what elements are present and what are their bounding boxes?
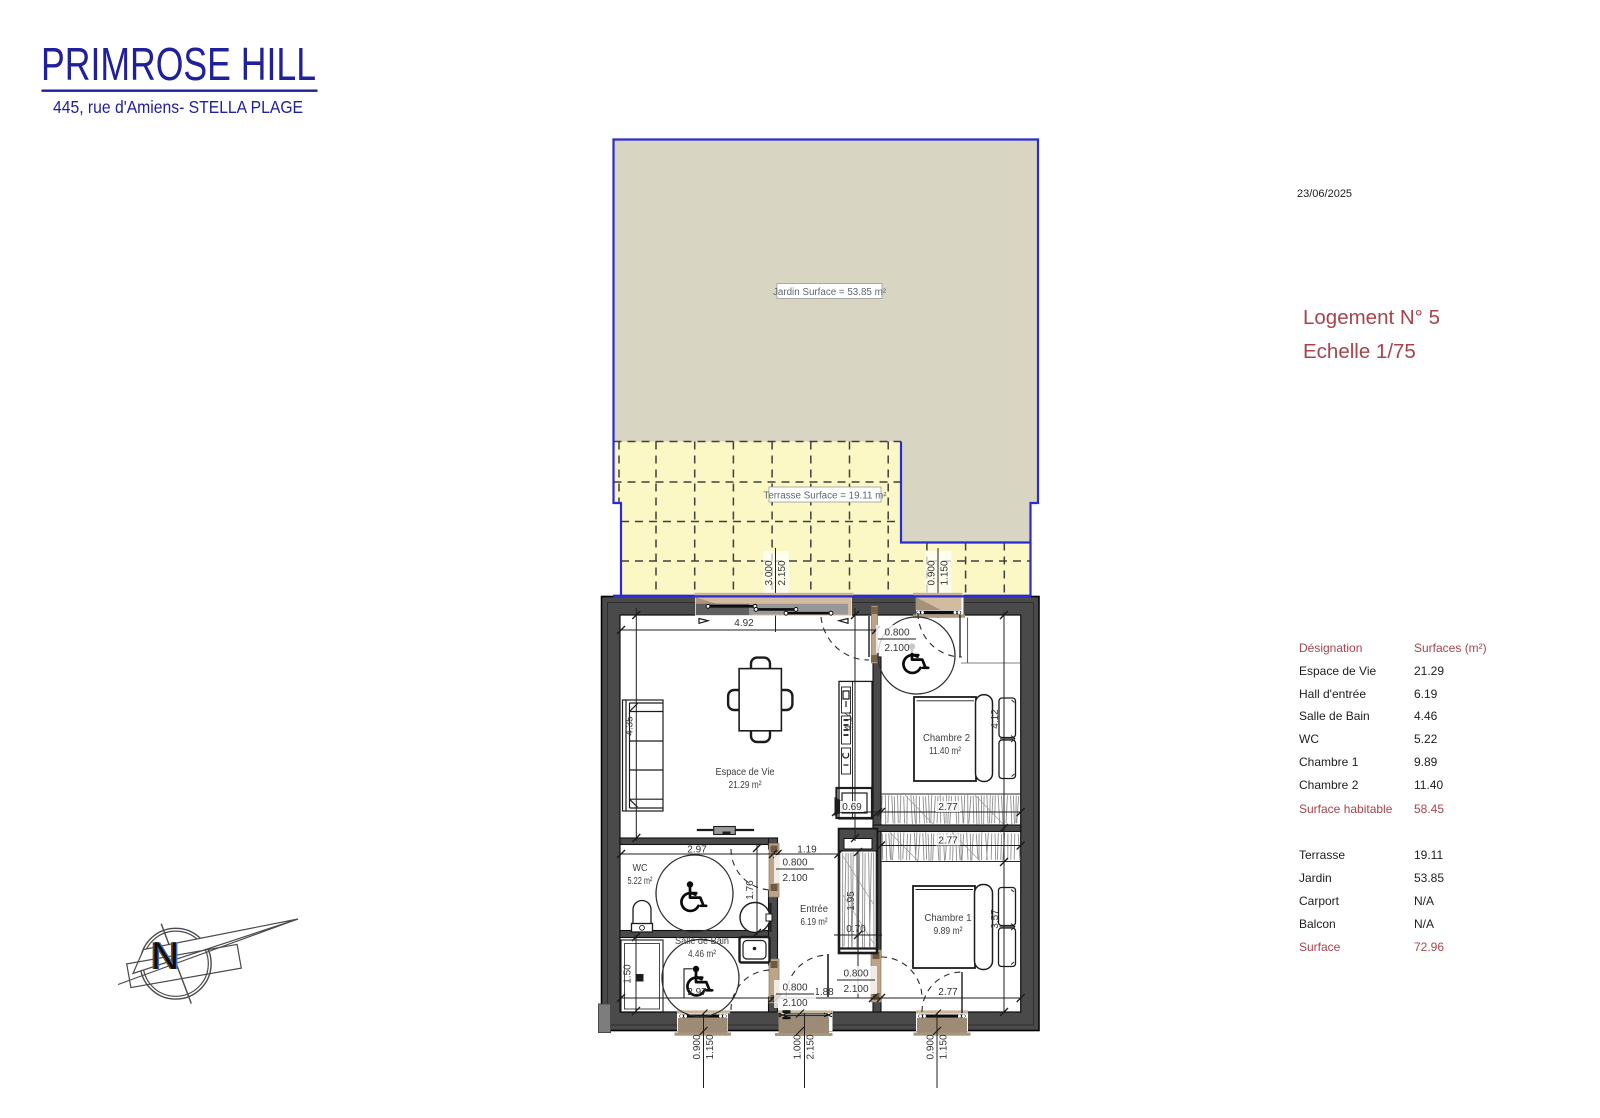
svg-text:2.100: 2.100 [782, 873, 807, 884]
svg-text:11.40 m²: 11.40 m² [929, 746, 962, 757]
svg-text:2.77: 2.77 [938, 836, 958, 847]
svg-text:2.150: 2.150 [777, 560, 788, 585]
svg-text:2.150: 2.150 [806, 1034, 817, 1059]
svg-text:PRIMROSE HILL: PRIMROSE HILL [41, 38, 316, 90]
svg-text:Terrasse Surface = 19.11 m²: Terrasse Surface = 19.11 m² [763, 490, 887, 501]
svg-text:1.150: 1.150 [705, 1034, 716, 1059]
svg-text:9.89 m²: 9.89 m² [934, 926, 964, 937]
svg-text:53.85: 53.85 [1414, 871, 1444, 885]
svg-text:N: N [151, 935, 179, 978]
svg-text:1.76: 1.76 [745, 880, 756, 900]
svg-text:1.19: 1.19 [797, 845, 817, 856]
svg-text:4.12: 4.12 [990, 709, 1001, 729]
svg-text:0.900: 0.900 [692, 1034, 703, 1059]
svg-text:21.29 m²: 21.29 m² [729, 780, 763, 791]
svg-text:1.88: 1.88 [814, 987, 834, 998]
svg-text:Terrasse: Terrasse [1299, 848, 1345, 862]
svg-text:72.96: 72.96 [1414, 940, 1444, 954]
svg-text:21.29: 21.29 [1414, 664, 1444, 678]
svg-text:Espace de Vie: Espace de Vie [716, 766, 775, 778]
svg-text:Chambre 2: Chambre 2 [923, 732, 970, 744]
svg-text:WC: WC [1299, 732, 1319, 746]
svg-text:Désignation: Désignation [1299, 641, 1362, 655]
svg-text:Salle de Bain: Salle de Bain [675, 935, 729, 947]
svg-text:Jardin: Jardin [1299, 871, 1332, 885]
svg-text:Echelle 1/75: Echelle 1/75 [1303, 340, 1416, 363]
svg-text:3.000: 3.000 [764, 560, 775, 585]
svg-text:WC: WC [633, 862, 648, 874]
svg-text:2.97: 2.97 [687, 845, 707, 856]
svg-text:2.97: 2.97 [687, 987, 707, 998]
svg-text:1.000: 1.000 [793, 1034, 804, 1059]
svg-text:Salle de Bain: Salle de Bain [1299, 709, 1370, 723]
svg-text:23/06/2025: 23/06/2025 [1297, 188, 1352, 200]
svg-text:1.150: 1.150 [939, 1034, 950, 1059]
svg-text:2.100: 2.100 [782, 998, 807, 1009]
svg-text:Carport: Carport [1299, 894, 1340, 908]
svg-text:Jardin Surface = 53.85 m²: Jardin Surface = 53.85 m² [773, 287, 887, 298]
svg-text:2.100: 2.100 [843, 984, 868, 995]
svg-text:4.46: 4.46 [1414, 709, 1438, 723]
svg-text:2.77: 2.77 [938, 987, 958, 998]
svg-text:5.22 m²: 5.22 m² [628, 876, 653, 887]
svg-text:0.800: 0.800 [884, 628, 909, 639]
svg-text:Chambre 1: Chambre 1 [1299, 755, 1359, 769]
svg-text:11.40: 11.40 [1414, 778, 1443, 792]
svg-text:0.800: 0.800 [782, 858, 807, 869]
svg-text:Surface habitable: Surface habitable [1299, 802, 1393, 816]
svg-text:Entrée: Entrée [800, 903, 828, 915]
svg-text:Chambre 2: Chambre 2 [1299, 778, 1359, 792]
svg-text:N/A: N/A [1414, 894, 1434, 908]
svg-text:6.19: 6.19 [1414, 687, 1438, 701]
svg-text:Surface: Surface [1299, 940, 1341, 954]
svg-text:Espace de Vie: Espace de Vie [1299, 664, 1376, 678]
svg-text:Hall d'entrée: Hall d'entrée [1299, 687, 1366, 701]
svg-text:4.35: 4.35 [625, 716, 636, 736]
svg-text:Chambre 1: Chambre 1 [925, 912, 972, 924]
svg-text:Balcon: Balcon [1299, 917, 1336, 931]
svg-text:0.69: 0.69 [842, 802, 862, 813]
svg-text:0.900: 0.900 [926, 1034, 937, 1059]
svg-text:1.150: 1.150 [940, 560, 951, 585]
svg-text:4.92: 4.92 [734, 618, 754, 629]
svg-text:5.22: 5.22 [1414, 732, 1438, 746]
svg-text:6.19 m²: 6.19 m² [801, 917, 829, 928]
svg-text:N/A: N/A [1414, 917, 1434, 931]
svg-text:0.70: 0.70 [846, 924, 866, 935]
svg-text:3.57: 3.57 [990, 909, 1001, 929]
svg-text:58.45: 58.45 [1414, 802, 1444, 816]
svg-text:Surfaces (m²): Surfaces (m²) [1414, 641, 1487, 655]
svg-text:9.89: 9.89 [1414, 755, 1438, 769]
svg-text:4.46 m²: 4.46 m² [688, 949, 717, 960]
svg-text:Logement N° 5: Logement N° 5 [1303, 306, 1440, 329]
svg-text:2.77: 2.77 [938, 802, 958, 813]
svg-text:19.11: 19.11 [1414, 848, 1443, 862]
svg-text:445, rue d'Amiens- STELLA PLAG: 445, rue d'Amiens- STELLA PLAGE [53, 97, 303, 117]
svg-text:4.14: 4.14 [844, 711, 855, 731]
svg-text:1.50: 1.50 [623, 964, 634, 984]
svg-text:1.95: 1.95 [846, 891, 857, 911]
svg-text:2.100: 2.100 [884, 643, 909, 654]
svg-text:0.800: 0.800 [782, 983, 807, 994]
svg-text:0.900: 0.900 [927, 560, 938, 585]
svg-text:0.800: 0.800 [843, 969, 868, 980]
